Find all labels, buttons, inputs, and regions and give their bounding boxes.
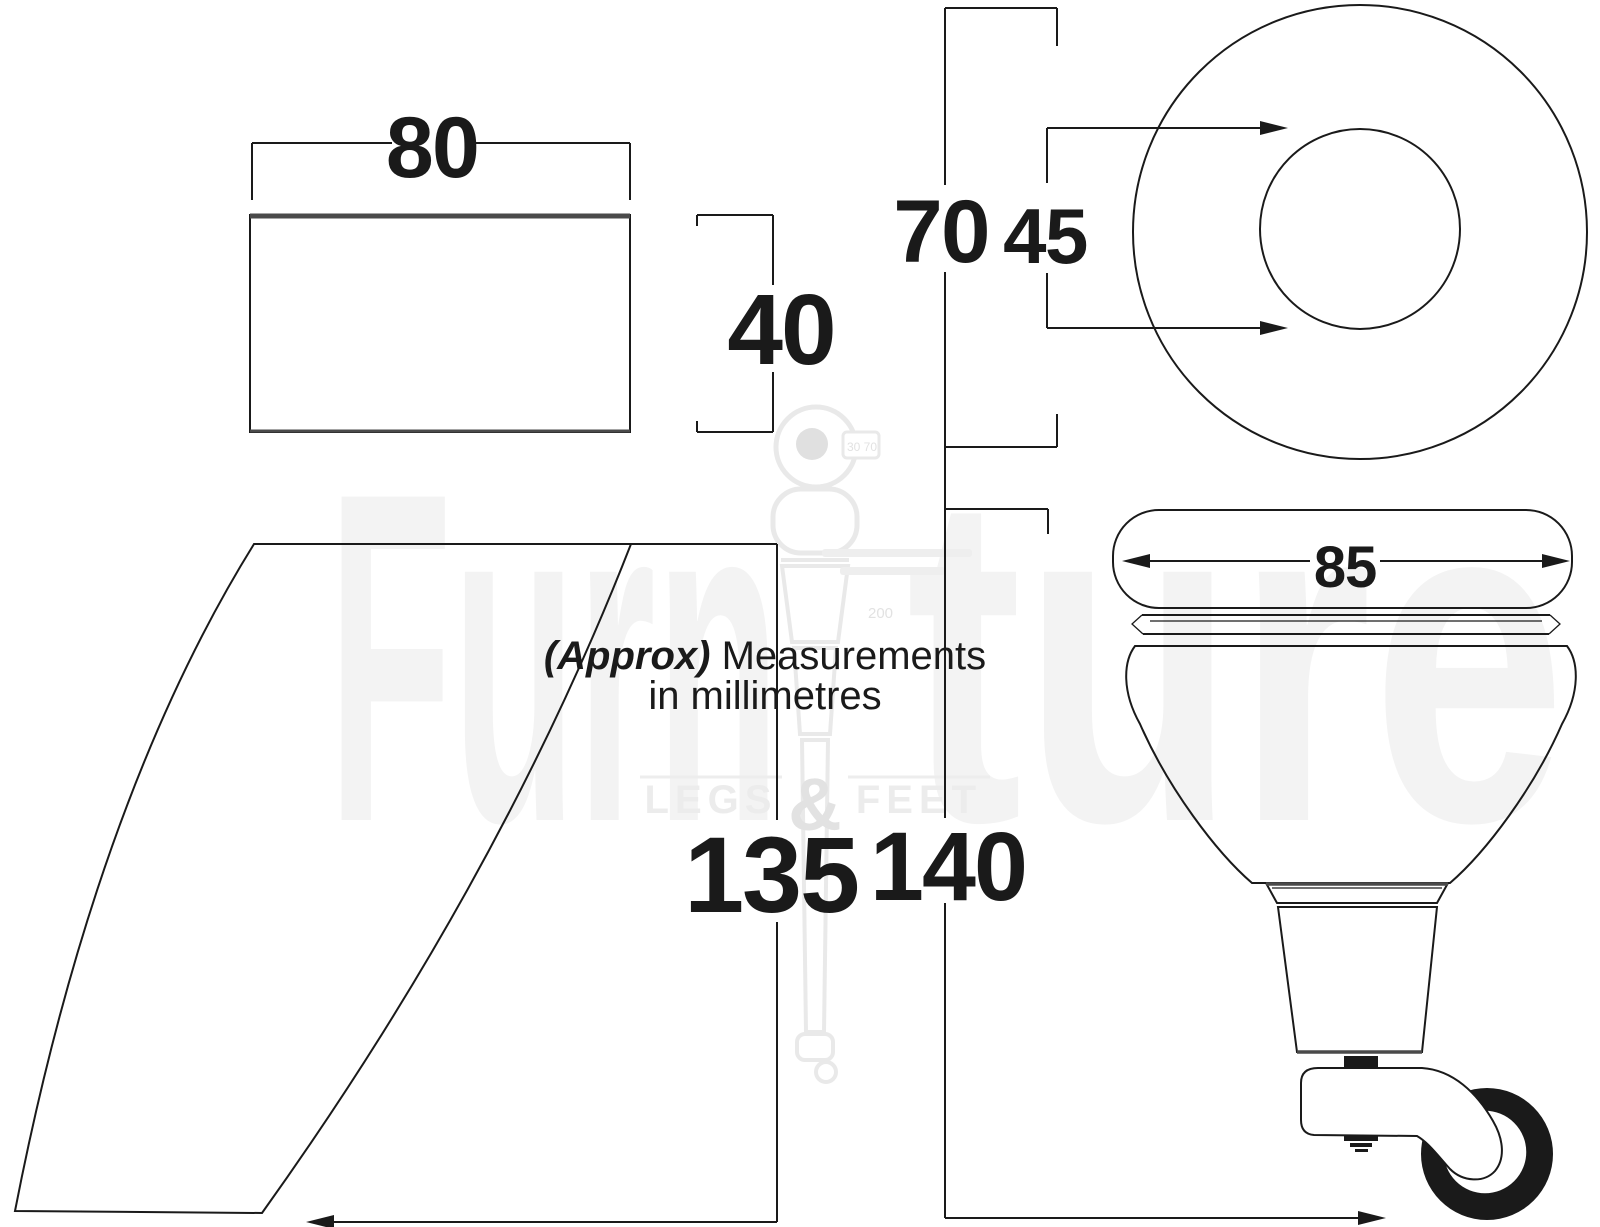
dim-label-sabre-height: 135 bbox=[684, 814, 858, 935]
units-note-line1: (Approx) Measurements bbox=[544, 634, 986, 678]
units-note-line2: in millimetres bbox=[648, 674, 881, 718]
arrow-right-icon bbox=[1260, 121, 1288, 135]
arrow-right-icon bbox=[1260, 321, 1288, 335]
plate-outer-circle bbox=[1133, 5, 1587, 459]
castor-fixing-plate bbox=[1344, 1056, 1378, 1068]
watermark-blur-bar bbox=[822, 549, 972, 557]
dim-label-castor-height: 140 bbox=[870, 812, 1026, 921]
castor-brake-icon bbox=[1344, 1136, 1378, 1152]
block-front-view: 80 40 bbox=[250, 100, 835, 432]
brake-bar bbox=[1355, 1149, 1368, 1152]
arrow-left-icon bbox=[306, 1215, 334, 1227]
watermark-mini-label-top: 30 70 bbox=[847, 440, 877, 454]
brake-bar bbox=[1350, 1143, 1372, 1147]
castor-horn bbox=[1301, 1068, 1502, 1179]
watermark-leg-bun bbox=[773, 489, 857, 553]
watermark-leg-wheel bbox=[816, 1062, 836, 1082]
arrow-right-icon bbox=[1358, 1211, 1386, 1225]
leg-stem bbox=[1278, 907, 1437, 1052]
dimension-drawing-canvas: Furn ture 30 70 200 LEGS & FEET bbox=[0, 0, 1600, 1227]
furniture-leg-diagram: Furn ture 30 70 200 LEGS & FEET bbox=[0, 0, 1600, 1227]
dim-label-block-height: 40 bbox=[727, 274, 834, 386]
units-note-prefix: (Approx) bbox=[544, 634, 711, 678]
watermark: Furn ture 30 70 200 LEGS & FEET bbox=[328, 395, 1566, 1082]
watermark-mini-label-mid: 200 bbox=[868, 605, 893, 622]
dim-label-plate-outer: 70 bbox=[893, 181, 988, 281]
watermark-leg-icon bbox=[773, 407, 879, 1082]
dim-label-cap-width: 85 bbox=[1314, 535, 1376, 600]
dim-plate-inner: 45 bbox=[1003, 121, 1288, 335]
dim-block-width: 80 bbox=[252, 100, 630, 200]
watermark-leg-foot bbox=[797, 1034, 833, 1060]
watermark-leg-dot bbox=[796, 428, 828, 460]
brake-bar bbox=[1344, 1136, 1378, 1141]
watermark-blur-bar bbox=[840, 567, 945, 575]
watermark-leg-body bbox=[782, 566, 848, 642]
units-note-measurements: Measurements bbox=[722, 634, 987, 678]
plate-inner-circle bbox=[1260, 129, 1460, 329]
units-note-rest bbox=[710, 634, 721, 678]
dim-label-plate-inner: 45 bbox=[1003, 192, 1087, 280]
dim-label-block-width: 80 bbox=[386, 100, 478, 196]
